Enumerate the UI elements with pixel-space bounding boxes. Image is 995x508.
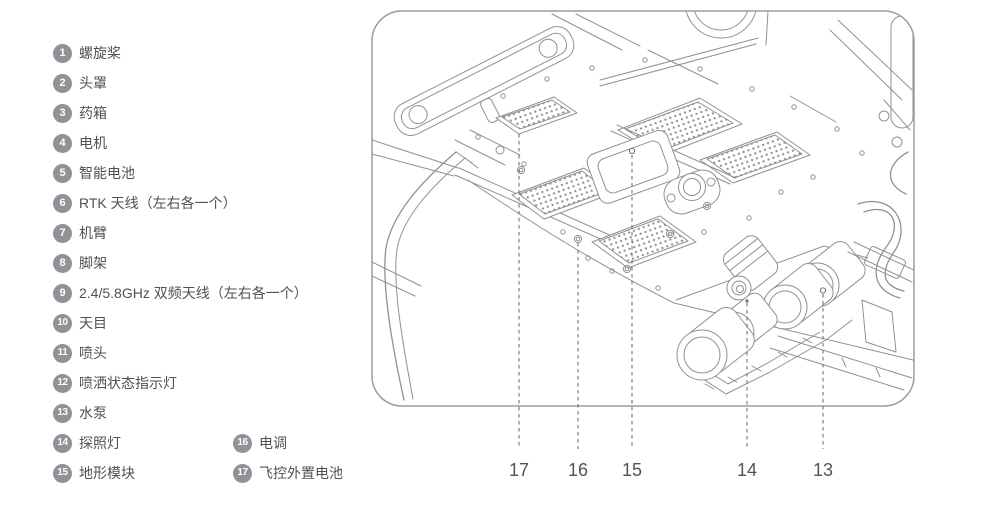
callout-label: 17 [509, 460, 529, 480]
parts-list-row: 3 药箱 [53, 98, 383, 128]
item-label: 天目 [79, 313, 107, 333]
item-label: 飞控外置电池 [259, 463, 343, 483]
parts-list-row: 14 探照灯 16 电调 [53, 428, 383, 458]
parts-list-row: 15 地形模块 17 飞控外置电池 [53, 458, 383, 488]
parts-list-row: 5 智能电池 [53, 158, 383, 188]
parts-list-cell: 17 飞控外置电池 [233, 463, 343, 483]
item-label: 喷头 [79, 343, 107, 363]
callout-label: 13 [813, 460, 833, 480]
parts-list-row: 13 水泵 [53, 398, 383, 428]
item-number-badge: 8 [53, 254, 72, 273]
callout-tip [820, 288, 825, 293]
item-number-badge: 4 [53, 134, 72, 153]
item-label: RTK 天线（左右各一个） [79, 193, 237, 213]
item-label: 电调 [259, 433, 287, 453]
item-label: 电机 [79, 133, 107, 153]
diagram-frame [372, 11, 914, 406]
parts-list-row: 8 脚架 [53, 248, 383, 278]
parts-list-row: 12 喷洒状态指示灯 [53, 368, 383, 398]
parts-list-cell: 15 地形模块 [53, 463, 233, 483]
parts-list-row: 9 2.4/5.8GHz 双频天线（左右各一个） [53, 278, 383, 308]
item-label: 脚架 [79, 253, 107, 273]
item-label: 头罩 [79, 73, 107, 93]
parts-list-row: 4 电机 [53, 128, 383, 158]
item-label: 螺旋桨 [79, 43, 121, 63]
parts-list-row: 11 喷头 [53, 338, 383, 368]
item-number-badge: 17 [233, 464, 252, 483]
callout-label: 16 [568, 460, 588, 480]
item-number-badge: 6 [53, 194, 72, 213]
item-label: 探照灯 [79, 433, 121, 453]
item-number-badge: 16 [233, 434, 252, 453]
item-number-badge: 1 [53, 44, 72, 63]
item-number-badge: 15 [53, 464, 72, 483]
item-number-badge: 9 [53, 284, 72, 303]
item-number-badge: 14 [53, 434, 72, 453]
item-label: 机臂 [79, 223, 107, 243]
item-label: 地形模块 [79, 463, 135, 483]
item-number-badge: 12 [53, 374, 72, 393]
callout-label: 14 [737, 460, 757, 480]
callout-label: 15 [622, 460, 642, 480]
item-number-badge: 10 [53, 314, 72, 333]
drone-line-art [372, 0, 914, 400]
parts-list-row: 2 头罩 [53, 68, 383, 98]
item-label: 喷洒状态指示灯 [79, 373, 177, 393]
parts-list-row: 7 机臂 [53, 218, 383, 248]
parts-list-cell: 16 电调 [233, 433, 287, 453]
item-label: 2.4/5.8GHz 双频天线（左右各一个） [79, 283, 308, 303]
manual-page: 1 螺旋桨 2 头罩 3 药箱 4 电机 5 智能电池 6 RTK 天线（左右各… [0, 0, 995, 508]
callout-labels: 17 16 15 14 13 [509, 460, 833, 480]
item-number-badge: 3 [53, 104, 72, 123]
item-number-badge: 11 [53, 344, 72, 363]
item-number-badge: 7 [53, 224, 72, 243]
item-label: 智能电池 [79, 163, 135, 183]
parts-list-cell: 14 探照灯 [53, 433, 233, 453]
callout-tip [629, 148, 634, 153]
parts-list: 1 螺旋桨 2 头罩 3 药箱 4 电机 5 智能电池 6 RTK 天线（左右各… [53, 38, 383, 488]
drone-bottom-diagram: 17 16 15 14 13 [370, 0, 995, 508]
item-number-badge: 5 [53, 164, 72, 183]
callout-tip [745, 299, 748, 302]
item-label: 水泵 [79, 403, 107, 423]
item-number-badge: 2 [53, 74, 72, 93]
parts-list-row: 6 RTK 天线（左右各一个） [53, 188, 383, 218]
parts-list-row: 10 天目 [53, 308, 383, 338]
item-label: 药箱 [79, 103, 107, 123]
item-number-badge: 13 [53, 404, 72, 423]
parts-list-row: 1 螺旋桨 [53, 38, 383, 68]
